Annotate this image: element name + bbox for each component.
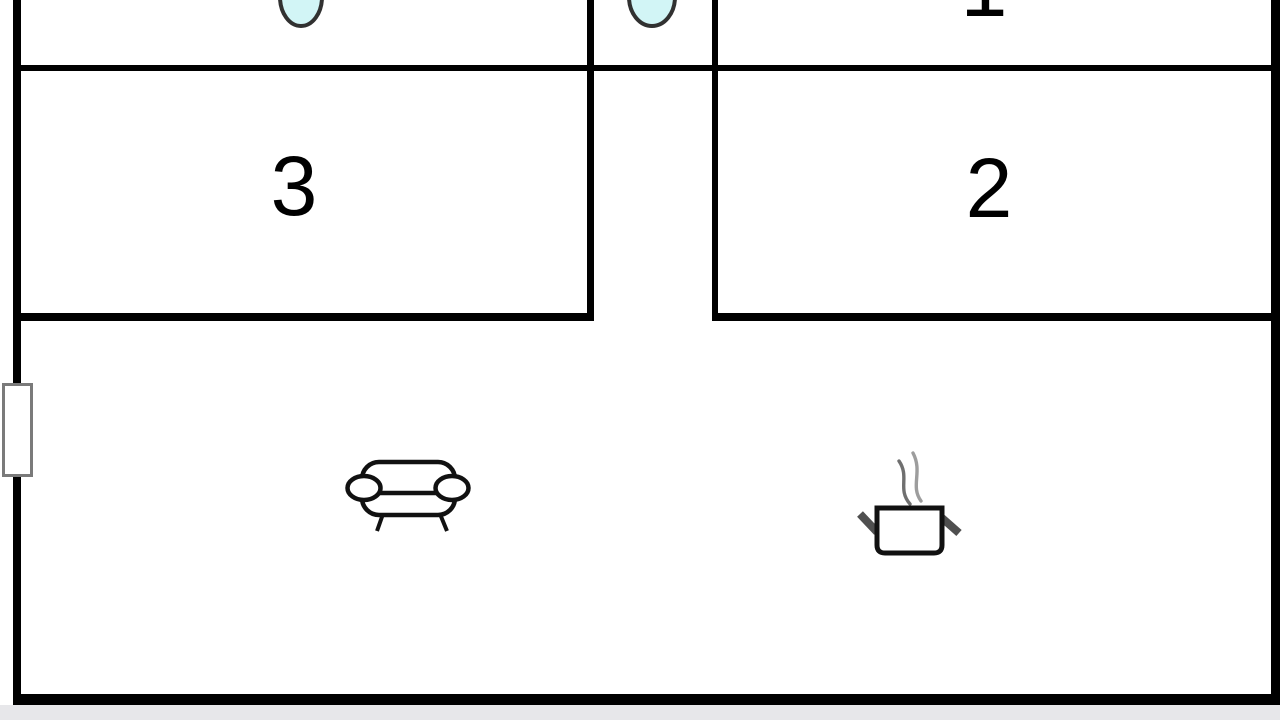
room-label-2: 2 <box>949 146 1029 230</box>
outer-wall-left <box>13 0 21 705</box>
sofa-icon <box>335 450 485 540</box>
steam-line <box>913 453 921 501</box>
room-label-1: 1 <box>944 0 1024 29</box>
basin-icon <box>623 0 681 32</box>
outer-wall-bottom <box>13 694 1280 705</box>
basin-icon <box>275 0 327 32</box>
middle-wall-right-segment <box>712 313 1271 321</box>
window-icon <box>2 383 33 477</box>
hallway-wall-right <box>712 0 718 321</box>
floor-plan: 3 2 1 <box>0 0 1280 720</box>
room-label-3: 3 <box>254 144 334 228</box>
cooking-pot-icon <box>840 440 970 560</box>
hallway-wall-left <box>587 0 594 321</box>
upper-horizontal-wall <box>21 65 1271 71</box>
outer-wall-right <box>1271 0 1280 705</box>
steam-line <box>899 461 910 504</box>
pot-body <box>877 508 942 553</box>
middle-wall-left-segment <box>21 313 594 321</box>
pot-handle <box>942 518 959 533</box>
outside-strip <box>0 705 1280 720</box>
pot-handle <box>860 514 877 532</box>
